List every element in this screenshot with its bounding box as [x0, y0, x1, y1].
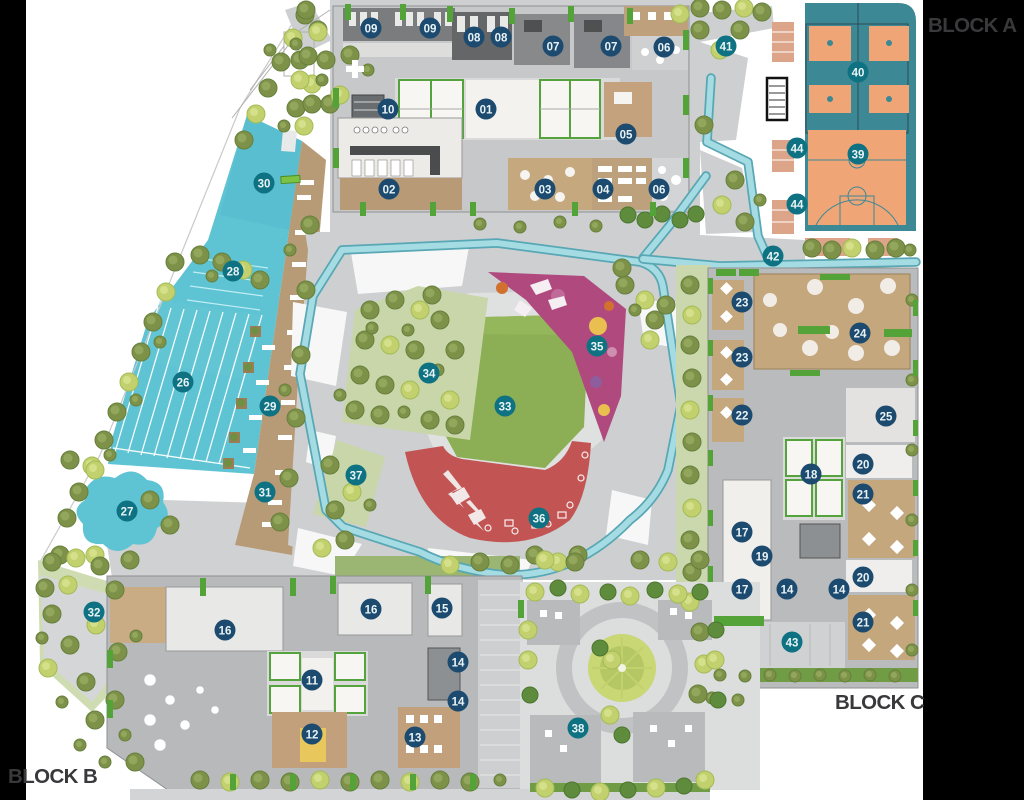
svg-text:03: 03 [539, 185, 552, 197]
svg-text:01: 01 [480, 105, 493, 117]
svg-text:11: 11 [306, 676, 319, 688]
svg-text:22: 22 [736, 411, 749, 423]
svg-text:14: 14 [781, 585, 794, 597]
svg-text:41: 41 [720, 42, 733, 54]
svg-text:10: 10 [382, 105, 395, 117]
svg-text:23: 23 [736, 298, 749, 310]
svg-text:13: 13 [409, 733, 422, 745]
svg-text:16: 16 [365, 605, 378, 617]
svg-text:08: 08 [468, 33, 481, 45]
svg-text:33: 33 [499, 402, 512, 414]
svg-text:17: 17 [736, 585, 749, 597]
svg-text:43: 43 [786, 638, 799, 650]
svg-text:BLOCK C: BLOCK C [835, 691, 925, 714]
svg-text:34: 34 [423, 369, 436, 381]
svg-text:02: 02 [383, 185, 396, 197]
svg-text:06: 06 [658, 43, 671, 55]
svg-text:25: 25 [880, 412, 893, 424]
svg-text:14: 14 [452, 658, 465, 670]
svg-text:23: 23 [736, 353, 749, 365]
svg-text:12: 12 [306, 730, 319, 742]
svg-text:08: 08 [495, 33, 508, 45]
svg-text:44: 44 [791, 200, 804, 212]
svg-text:36: 36 [533, 514, 546, 526]
svg-text:30: 30 [258, 179, 271, 191]
svg-text:17: 17 [736, 528, 749, 540]
svg-text:42: 42 [767, 252, 780, 264]
svg-text:14: 14 [452, 697, 465, 709]
svg-text:BLOCK B: BLOCK B [8, 765, 97, 788]
svg-text:15: 15 [436, 604, 449, 616]
svg-text:29: 29 [264, 402, 277, 414]
svg-text:32: 32 [88, 608, 101, 620]
svg-text:28: 28 [227, 267, 240, 279]
svg-text:38: 38 [572, 724, 585, 736]
svg-text:21: 21 [857, 490, 870, 502]
svg-text:09: 09 [365, 24, 378, 36]
svg-text:44: 44 [791, 144, 804, 156]
svg-text:09: 09 [424, 24, 437, 36]
svg-text:19: 19 [756, 552, 769, 564]
svg-text:07: 07 [547, 42, 560, 54]
svg-text:27: 27 [121, 507, 134, 519]
svg-text:14: 14 [833, 585, 846, 597]
svg-text:20: 20 [857, 460, 870, 472]
svg-text:16: 16 [219, 626, 232, 638]
svg-text:20: 20 [857, 573, 870, 585]
svg-text:37: 37 [350, 471, 363, 483]
svg-text:21: 21 [857, 618, 870, 630]
svg-text:18: 18 [805, 470, 818, 482]
svg-text:05: 05 [620, 130, 633, 142]
svg-text:07: 07 [605, 42, 618, 54]
svg-text:06: 06 [653, 185, 666, 197]
svg-text:04: 04 [597, 185, 610, 197]
svg-text:39: 39 [852, 150, 865, 162]
svg-text:26: 26 [177, 378, 190, 390]
svg-text:40: 40 [852, 68, 865, 80]
svg-text:35: 35 [591, 342, 604, 354]
svg-text:24: 24 [854, 329, 867, 341]
svg-text:31: 31 [259, 488, 272, 500]
svg-text:BLOCK A: BLOCK A [928, 14, 1017, 37]
